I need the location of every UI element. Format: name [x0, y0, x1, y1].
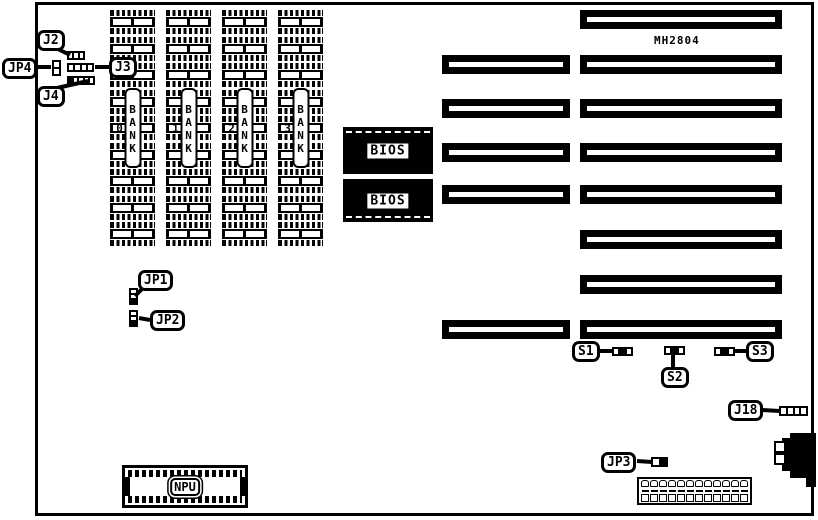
chip-pins: [222, 81, 267, 87]
chip-pins: [222, 187, 267, 193]
chip-body: [278, 176, 323, 186]
bank-1-chip-column: BANK 1: [166, 10, 211, 249]
expansion-slot-short: [442, 320, 570, 339]
bios-chip-2: BIOS: [343, 179, 433, 222]
power-pin: [713, 480, 721, 502]
power-pin: [740, 480, 748, 502]
chip-pins: [166, 63, 211, 69]
chip-pins: [110, 240, 155, 246]
expansion-slot-long: [580, 320, 782, 339]
dip-chip: [278, 63, 323, 87]
chip-pins: [278, 28, 323, 34]
bios-chip-notch: [346, 131, 430, 133]
dip-chip: [110, 196, 155, 220]
jumper-jp2: [129, 310, 138, 327]
chip-body: [278, 44, 323, 54]
chip-body: [110, 17, 155, 27]
expansion-slot-long: [580, 99, 782, 118]
socket-side-bar: [240, 477, 245, 496]
chip-pins: [278, 222, 323, 228]
chip-body: [110, 203, 155, 213]
power-pin: [677, 480, 685, 502]
expansion-slot-long: [580, 55, 782, 74]
chip-pins: [110, 214, 155, 220]
keyboard-connector-pin: [774, 441, 786, 453]
chip-pins: [166, 55, 211, 61]
keyboard-connector-pin: [774, 453, 786, 465]
dip-chip: [278, 196, 323, 220]
chip-body: [222, 203, 267, 213]
chip-pins: [166, 37, 211, 43]
chip-pins: [222, 222, 267, 228]
chip-pins: [166, 187, 211, 193]
power-pin: [731, 480, 739, 502]
connector-jp3: [651, 457, 668, 467]
callout-j18: J18: [728, 400, 763, 421]
dip-chip: [222, 63, 267, 87]
switch-s1: [612, 347, 633, 356]
jumper-j3: [67, 63, 94, 72]
chip-pins: [222, 240, 267, 246]
chip-body: [166, 17, 211, 27]
chip-pins: [222, 28, 267, 34]
socket-side-bar: [125, 477, 130, 496]
chip-pins: [166, 81, 211, 87]
bank-2-label: BANK 2: [236, 88, 253, 168]
power-pin: [722, 480, 730, 502]
chip-body: [166, 70, 211, 80]
jumper-jp1: [129, 288, 138, 305]
chip-pins: [278, 10, 323, 16]
npu-label: NPU: [170, 478, 200, 496]
expansion-slot-short: [442, 185, 570, 204]
chip-pins: [278, 37, 323, 43]
callout-s2: S2: [661, 367, 689, 388]
dip-chip: [222, 169, 267, 193]
chip-body: [222, 70, 267, 80]
chip-pins: [110, 28, 155, 34]
chip-pins: [278, 187, 323, 193]
callout-jp4: JP4: [2, 58, 37, 79]
chip-pins: [222, 63, 267, 69]
dip-chip: [166, 222, 211, 246]
power-pin: [704, 480, 712, 502]
dip-chip: [110, 10, 155, 34]
chip-pins: [222, 55, 267, 61]
chip-pins: [166, 196, 211, 202]
chip-pins: [222, 10, 267, 16]
power-pin: [668, 480, 676, 502]
expansion-slot-long: [580, 275, 782, 294]
chip-body: [166, 44, 211, 54]
jumper-j2: [67, 51, 85, 60]
chip-pins: [278, 196, 323, 202]
chip-pins: [278, 240, 323, 246]
chip-body: [166, 176, 211, 186]
chip-pins: [278, 169, 323, 175]
chip-pins: [166, 28, 211, 34]
power-pin: [650, 480, 658, 502]
chip-pins: [222, 214, 267, 220]
chip-pins: [110, 222, 155, 228]
switch-s2: [664, 346, 685, 355]
dip-chip: [222, 37, 267, 61]
power-pin: [686, 480, 694, 502]
dip-chip: [222, 222, 267, 246]
bios-label: BIOS: [367, 143, 408, 158]
chip-pins: [110, 169, 155, 175]
chip-body: [166, 203, 211, 213]
callout-s1: S1: [572, 341, 600, 362]
dip-chip: [110, 169, 155, 193]
expansion-slot-short: [442, 143, 570, 162]
chip-body: [110, 229, 155, 239]
chip-pins: [110, 37, 155, 43]
npu-socket: NPU: [122, 465, 248, 508]
power-pin: [659, 480, 667, 502]
bank-0-label: BANK 0: [124, 88, 141, 168]
chip-body: [222, 17, 267, 27]
bank-1-label: BANK 1: [180, 88, 197, 168]
chip-pins: [166, 10, 211, 16]
callout-jp1: JP1: [138, 270, 173, 291]
callout-j4: J4: [37, 86, 65, 107]
bank-3-label: BANK 3: [292, 88, 309, 168]
dip-chip: [166, 37, 211, 61]
motherboard-diagram: BANK 0BANK 1BANK 2BANK 3 BIOS BIOS MH280…: [0, 0, 818, 520]
chip-pins: [166, 240, 211, 246]
chip-pins: [110, 81, 155, 87]
expansion-slot-long: [580, 230, 782, 249]
chip-pins: [222, 37, 267, 43]
chip-pins: [110, 196, 155, 202]
callout-jp2: JP2: [150, 310, 185, 331]
dip-chip: [166, 169, 211, 193]
expansion-slot-long: [580, 10, 782, 29]
chip-pins: [222, 169, 267, 175]
chip-pins: [278, 81, 323, 87]
power-pin: [695, 480, 703, 502]
dip-chip: [222, 10, 267, 34]
expansion-slot-short: [442, 55, 570, 74]
chip-body: [278, 70, 323, 80]
callout-s3: S3: [746, 341, 774, 362]
jumper-j4: [67, 76, 95, 85]
dip-chip: [278, 169, 323, 193]
dip-chip: [278, 10, 323, 34]
dip-chip: [166, 10, 211, 34]
power-connector: [637, 477, 752, 505]
bios-chip-1: BIOS: [343, 127, 433, 174]
chip-pins: [278, 63, 323, 69]
dip-chip: [110, 222, 155, 246]
chip-body: [110, 176, 155, 186]
chip-pins: [166, 169, 211, 175]
socket-pin-row: [128, 496, 242, 503]
dip-chip: [166, 63, 211, 87]
chip-body: [222, 176, 267, 186]
dip-chip: [166, 196, 211, 220]
power-pin: [641, 480, 649, 502]
chip-body: [222, 229, 267, 239]
bios-chip-notch: [346, 216, 430, 218]
expansion-slot-long: [580, 143, 782, 162]
bank-0-chip-column: BANK 0: [110, 10, 155, 249]
callout-j2: J2: [37, 30, 65, 51]
switch-s3: [714, 347, 735, 356]
chip-pins: [222, 196, 267, 202]
expansion-slot-short: [442, 99, 570, 118]
keyboard-connector-body: [790, 433, 816, 478]
jumper-jp4: [52, 60, 61, 76]
chip-body: [278, 17, 323, 27]
chip-pins: [278, 55, 323, 61]
chip-body: [222, 44, 267, 54]
connector-j18: [779, 406, 808, 416]
chip-body: [278, 203, 323, 213]
expansion-slot-long: [580, 185, 782, 204]
part-number-text: MH2804: [654, 34, 700, 47]
chip-pins: [278, 214, 323, 220]
keyboard-connector-step: [806, 478, 816, 487]
chip-body: [166, 229, 211, 239]
callout-j3: J3: [109, 57, 137, 78]
bank-3-chip-column: BANK 3: [278, 10, 323, 249]
dip-chip: [278, 222, 323, 246]
chip-pins: [166, 222, 211, 228]
chip-body: [278, 229, 323, 239]
chip-pins: [110, 187, 155, 193]
callout-jp3: JP3: [601, 452, 636, 473]
dip-chip: [222, 196, 267, 220]
bios-label: BIOS: [367, 193, 408, 208]
chip-pins: [166, 214, 211, 220]
chip-body: [110, 44, 155, 54]
dip-chip: [278, 37, 323, 61]
chip-pins: [110, 10, 155, 16]
bank-2-chip-column: BANK 2: [222, 10, 267, 249]
